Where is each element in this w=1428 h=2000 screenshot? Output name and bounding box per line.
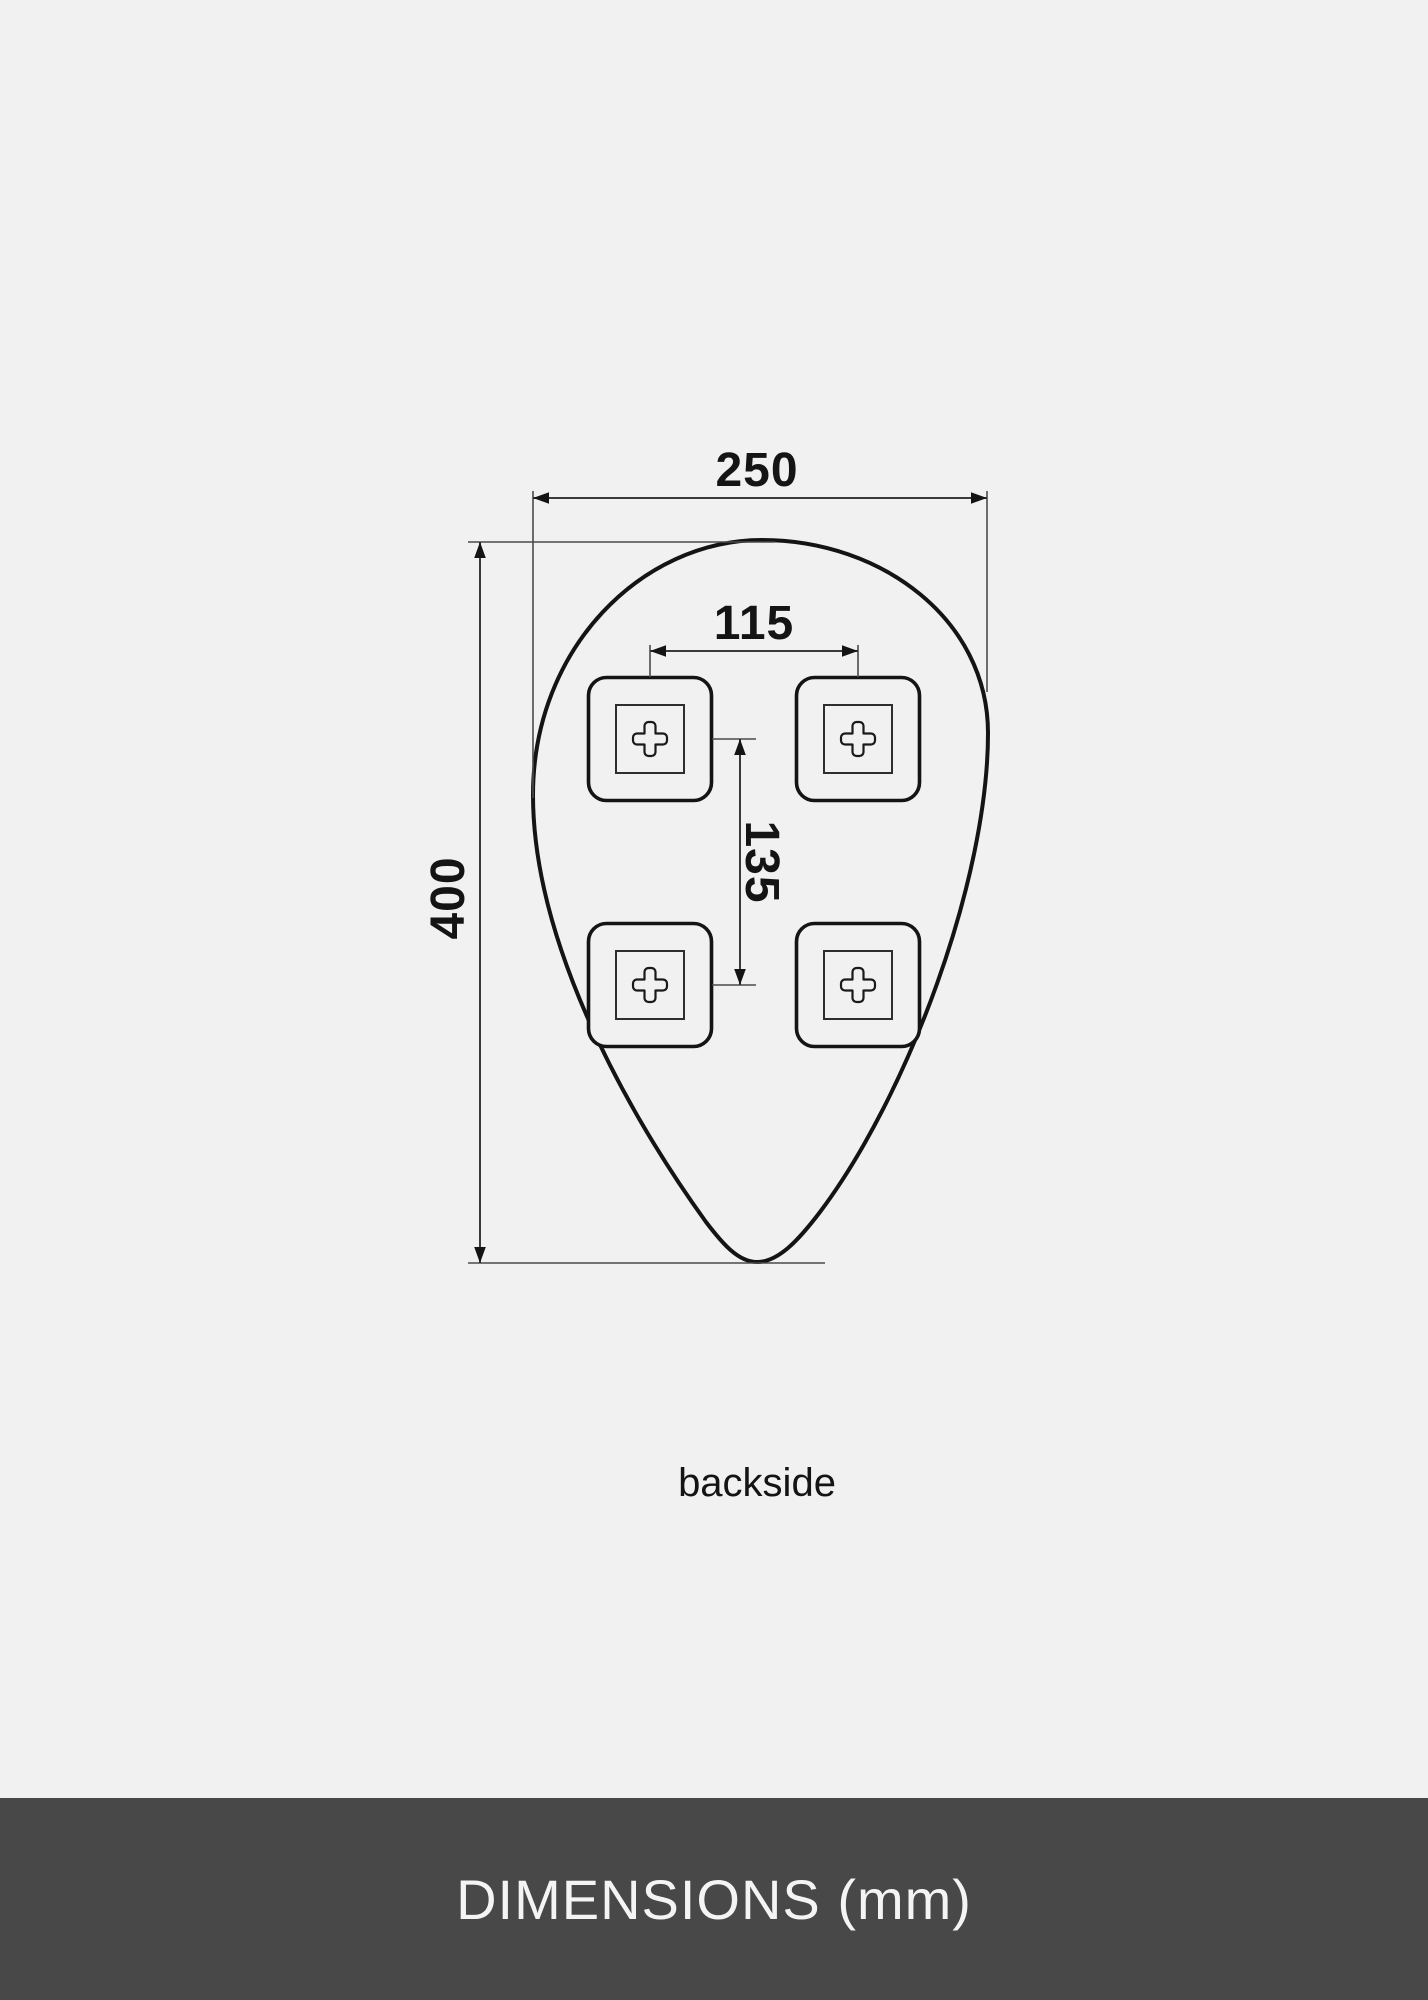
footer-bar: DIMENSIONS (mm): [0, 1798, 1428, 2000]
dimension-label-overall-width: 250: [715, 444, 798, 497]
dimension-bracket-spacing-horizontal: 115: [650, 597, 858, 677]
dimension-diagram: 250 400 115 135: [0, 0, 1428, 1798]
mounting-bracket-top-right: [797, 678, 920, 801]
dimension-bracket-spacing-vertical: 135: [712, 739, 788, 985]
footer-title: DIMENSIONS (mm): [456, 1867, 972, 1932]
mounting-bracket-top-left: [589, 678, 712, 801]
dimension-label-overall-height: 400: [422, 856, 475, 939]
view-caption: backside: [678, 1461, 836, 1505]
dimension-label-bracket-spacing-horizontal: 115: [714, 597, 794, 650]
mounting-bracket-bottom-right: [797, 924, 920, 1047]
dimension-label-bracket-spacing-vertical: 135: [735, 820, 788, 903]
product-dimension-sheet: 250 400 115 135: [0, 0, 1428, 2000]
mounting-bracket-bottom-left: [589, 924, 712, 1047]
